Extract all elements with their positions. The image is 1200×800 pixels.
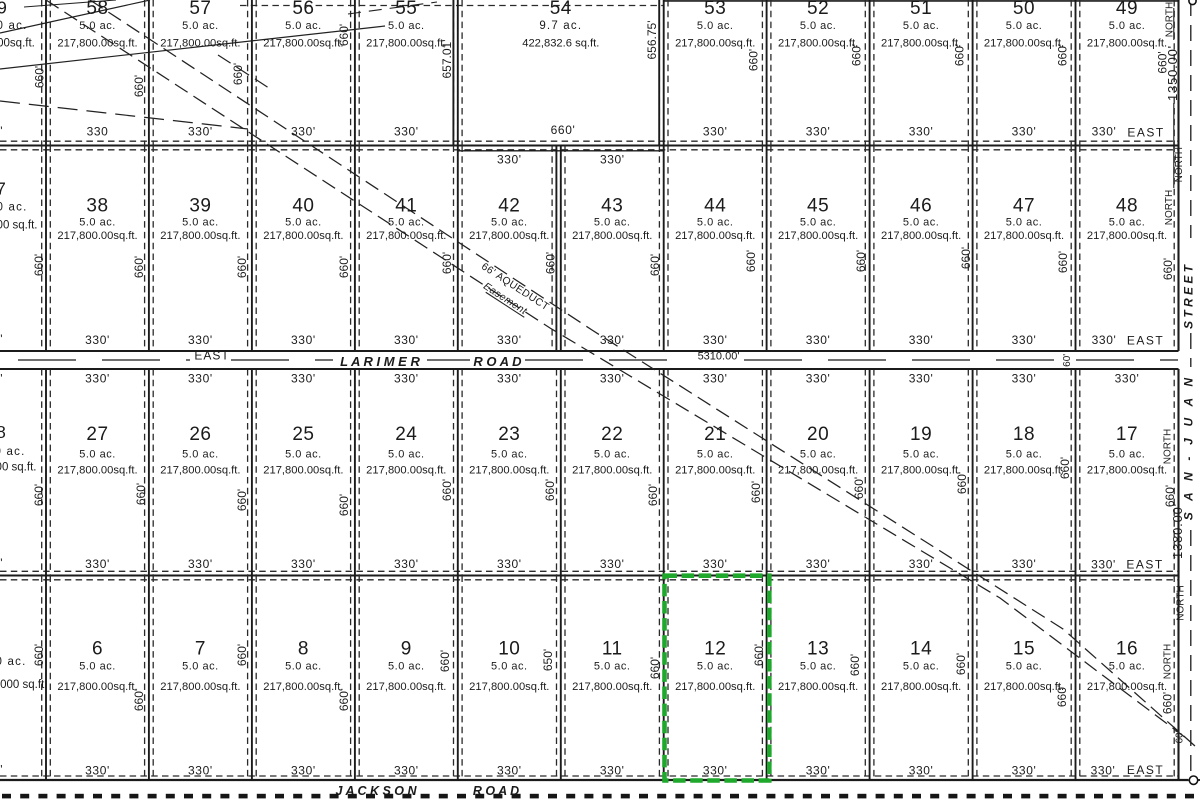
svg-text:660': 660' [744, 250, 758, 272]
svg-text:330': 330' [703, 125, 728, 139]
svg-text:217,800.00sq.ft.: 217,800.00sq.ft. [160, 681, 240, 693]
svg-text:330': 330' [291, 557, 316, 571]
svg-text:330': 330' [1012, 372, 1037, 386]
svg-text:5.0 ac.: 5.0 ac. [388, 20, 425, 32]
svg-text:49: 49 [1116, 0, 1138, 19]
svg-text:5.0 ac.: 5.0 ac. [79, 448, 116, 460]
svg-text:5.0 ac.: 5.0 ac. [800, 448, 837, 460]
svg-text:5.0 ac.: 5.0 ac. [800, 20, 837, 32]
svg-text:EAST: EAST [1127, 763, 1164, 777]
svg-text:50: 50 [1013, 0, 1035, 19]
svg-text:330': 330' [1092, 125, 1117, 139]
svg-text:0 ac.: 0 ac. [0, 656, 26, 668]
svg-text:217,800.00sq.ft.: 217,800.00sq.ft. [984, 37, 1064, 49]
svg-text:660': 660' [1055, 685, 1069, 707]
svg-text:330': 330' [291, 333, 316, 347]
svg-text:26: 26 [189, 424, 211, 445]
svg-text:660': 660' [1161, 258, 1175, 280]
svg-text:217,800.00sq.ft.: 217,800.00sq.ft. [469, 464, 549, 476]
svg-text:0000 sq.ft: 0000 sq.ft [0, 679, 45, 691]
svg-text:660': 660' [1156, 51, 1170, 73]
svg-text:660': 660' [854, 250, 868, 272]
svg-text:5.0 ac.: 5.0 ac. [594, 216, 631, 228]
svg-text:660': 660' [1058, 457, 1072, 479]
svg-text:11: 11 [602, 639, 623, 660]
svg-text:217,800.00sq.ft.: 217,800.00sq.ft. [778, 37, 858, 49]
svg-text:660': 660' [955, 472, 969, 494]
svg-text:217,800.00sq.ft.: 217,800.00sq.ft. [984, 230, 1064, 242]
svg-text:330': 330' [497, 372, 522, 386]
svg-text:EAST: EAST [1127, 126, 1164, 140]
svg-text:217,800.00sq.ft.: 217,800.00sq.ft. [366, 230, 446, 242]
svg-text:217,800.00sq.ft.: 217,800.00sq.ft. [881, 464, 961, 476]
svg-text:16: 16 [1116, 639, 1138, 660]
svg-text:21: 21 [704, 424, 726, 445]
svg-text:330': 330' [188, 557, 213, 571]
svg-text:660': 660' [32, 484, 46, 506]
svg-text:S A N - J U A N: S A N - J U A N [1182, 374, 1196, 521]
svg-text:657.01': 657.01' [440, 40, 454, 79]
svg-text:330': 330' [291, 372, 316, 386]
svg-text:660': 660' [1056, 44, 1070, 66]
svg-text:51: 51 [910, 0, 932, 19]
svg-text:6: 6 [92, 639, 103, 660]
svg-text:330': 330' [600, 333, 625, 347]
svg-text:330': 330' [806, 764, 831, 778]
svg-text:330': 330' [1012, 125, 1037, 139]
svg-text:660': 660' [953, 44, 967, 66]
svg-text:330': 330' [703, 372, 728, 386]
svg-text:5.0 ac.: 5.0 ac. [285, 216, 322, 228]
svg-text:650': 650' [541, 649, 555, 671]
svg-text:330': 330' [806, 372, 831, 386]
svg-text:660': 660' [235, 256, 249, 278]
svg-text:217,800.00sq.ft.: 217,800.00sq.ft. [675, 464, 755, 476]
svg-text:330': 330' [85, 372, 110, 386]
svg-text:53: 53 [704, 0, 726, 19]
svg-text:330': 330' [394, 333, 419, 347]
svg-text:660': 660' [235, 644, 249, 666]
svg-text:217,800.00sq.ft.: 217,800.00sq.ft. [1087, 681, 1167, 693]
svg-text:5.0 ac.: 5.0 ac. [388, 216, 425, 228]
svg-text:217,800.00sq.ft.: 217,800.00sq.ft. [984, 681, 1064, 693]
svg-text:NORTH: NORTH [1165, 2, 1176, 37]
svg-text:9.7 ac.: 9.7 ac. [539, 20, 582, 32]
svg-text:1380.00': 1380.00' [1170, 503, 1185, 559]
svg-text:660': 660' [231, 63, 245, 85]
svg-text:0': 0' [0, 556, 3, 570]
svg-text:217,800.00sq.ft.: 217,800.00sq.ft. [160, 37, 240, 49]
svg-text:660': 660' [959, 247, 973, 269]
svg-text:330': 330' [85, 333, 110, 347]
svg-text:12: 12 [704, 639, 726, 660]
svg-text:5.0 ac.: 5.0 ac. [182, 448, 219, 460]
svg-text:5.0 ac.: 5.0 ac. [285, 448, 322, 460]
svg-text:41: 41 [395, 196, 417, 217]
svg-text:660': 660' [747, 49, 761, 71]
svg-text:45: 45 [807, 196, 829, 217]
svg-text:L A R I M E R: L A R I M E R [340, 354, 420, 369]
svg-text:19: 19 [910, 424, 932, 445]
svg-text:330': 330' [600, 764, 625, 778]
svg-text:330': 330' [188, 372, 213, 386]
svg-text:9: 9 [0, 0, 7, 18]
svg-text:660': 660' [337, 689, 351, 711]
svg-text:20: 20 [807, 424, 829, 445]
svg-text:330': 330' [909, 764, 934, 778]
svg-text:217,800.00sq.ft.: 217,800.00sq.ft. [263, 230, 343, 242]
svg-text:5.0 ac.: 5.0 ac. [697, 216, 734, 228]
svg-text:660': 660' [646, 484, 660, 506]
svg-text:48: 48 [1116, 196, 1138, 217]
svg-text:330': 330' [1012, 764, 1037, 778]
svg-text:217,800.00sq.ft.: 217,800.00sq.ft. [778, 230, 858, 242]
svg-text:660': 660' [648, 657, 662, 679]
svg-text:5.0 ac.: 5.0 ac. [697, 20, 734, 32]
svg-text:EAST: EAST [194, 349, 229, 363]
svg-text:8: 8 [298, 639, 309, 660]
svg-text:330': 330' [394, 557, 419, 571]
svg-text:660': 660' [648, 254, 662, 276]
svg-text:330': 330' [188, 764, 213, 778]
svg-text:330': 330' [600, 372, 625, 386]
svg-text:217,800.00sq.ft.: 217,800.00sq.ft. [984, 464, 1064, 476]
svg-text:NORTH: NORTH [1163, 429, 1174, 464]
svg-text:660': 660' [132, 75, 146, 97]
svg-text:330': 330' [703, 333, 728, 347]
svg-text:56: 56 [292, 0, 314, 19]
svg-text:217,800.00sq.ft.: 217,800.00sq.ft. [778, 681, 858, 693]
svg-text:55: 55 [395, 0, 417, 19]
svg-text:330': 330' [909, 372, 934, 386]
svg-text:422,832.6 sq.ft.: 422,832.6 sq.ft. [522, 37, 599, 49]
svg-text:330': 330' [1012, 333, 1037, 347]
svg-text:R O A D: R O A D [473, 354, 522, 369]
svg-text:NORTH: NORTH [1176, 585, 1187, 620]
svg-text:660': 660' [132, 689, 146, 711]
svg-text:25: 25 [292, 424, 314, 445]
svg-text:330': 330' [188, 125, 213, 139]
svg-text:217,800.00sq.ft.: 217,800.00sq.ft. [57, 230, 137, 242]
svg-text:660': 660' [337, 494, 351, 516]
svg-text:330': 330' [291, 764, 316, 778]
svg-text:660': 660' [33, 66, 47, 88]
svg-text:57: 57 [189, 0, 211, 19]
svg-text:5.0 ac.: 5.0 ac. [182, 20, 219, 32]
svg-text:5.0 ac.: 5.0 ac. [285, 660, 322, 672]
svg-text:5.0 ac.: 5.0 ac. [1006, 660, 1043, 672]
svg-text:18: 18 [1013, 424, 1035, 445]
svg-text:330': 330' [909, 125, 934, 139]
svg-text:5.0 ac.: 5.0 ac. [697, 660, 734, 672]
svg-text:660': 660' [954, 653, 968, 675]
svg-text:5.0 ac.: 5.0 ac. [491, 216, 528, 228]
svg-text:NORTH: NORTH [1163, 644, 1174, 679]
svg-text:EAST: EAST [1126, 557, 1163, 571]
svg-text:217,800.00sq.ft.: 217,800.00sq.ft. [57, 464, 137, 476]
svg-text:330': 330' [1091, 764, 1116, 778]
svg-text:13: 13 [807, 639, 829, 660]
svg-text:40: 40 [292, 196, 314, 217]
svg-text:58: 58 [86, 0, 108, 19]
svg-text:330: 330 [87, 125, 109, 139]
svg-text:5.0 ac.: 5.0 ac. [491, 660, 528, 672]
svg-text:00 sq.ft.: 00 sq.ft. [0, 220, 37, 232]
svg-text:5.0 ac.: 5.0 ac. [1006, 20, 1043, 32]
svg-text:330': 330' [394, 764, 419, 778]
svg-text:5.0 ac.: 5.0 ac. [903, 20, 940, 32]
svg-text:60': 60' [1062, 354, 1073, 367]
svg-text:0': 0' [0, 124, 3, 138]
svg-text:39: 39 [189, 196, 211, 217]
svg-text:46: 46 [910, 196, 932, 217]
svg-text:330': 330' [1092, 333, 1117, 347]
svg-text:5.0 ac.: 5.0 ac. [1006, 448, 1043, 460]
svg-text:660': 660' [132, 256, 146, 278]
svg-text:217,800.00sq.ft.: 217,800.00sq.ft. [1087, 37, 1167, 49]
svg-text:217,800.00sq.ft.: 217,800.00sq.ft. [263, 681, 343, 693]
svg-text:27: 27 [86, 424, 108, 445]
svg-text:330': 330' [1115, 372, 1140, 386]
svg-text:217,800.00sq.ft.: 217,800.00sq.ft. [366, 37, 446, 49]
svg-text:5.0 ac.: 5.0 ac. [800, 216, 837, 228]
svg-text:44: 44 [704, 196, 726, 217]
svg-text:330': 330' [497, 153, 522, 167]
svg-text:217,800.00sq.ft.: 217,800.00sq.ft. [881, 681, 961, 693]
svg-text:24: 24 [395, 424, 417, 445]
svg-text:656.75': 656.75' [645, 21, 659, 60]
svg-text:5.0 ac.: 5.0 ac. [594, 660, 631, 672]
svg-text:217,800.00sq.ft.: 217,800.00sq.ft. [57, 37, 137, 49]
svg-text:5.0 ac.: 5.0 ac. [79, 216, 116, 228]
svg-text:330': 330' [806, 125, 831, 139]
svg-text:217,800.00sq.ft.: 217,800.00sq.ft. [1087, 464, 1167, 476]
svg-text:217,800.00sq.ft.: 217,800.00sq.ft. [366, 681, 446, 693]
svg-text:660': 660' [438, 650, 452, 672]
svg-text:217,800.00sq.ft.: 217,800.00sq.ft. [469, 681, 549, 693]
svg-text:217,800.00sq.ft.: 217,800.00sq.ft. [263, 464, 343, 476]
svg-text:330': 330' [497, 333, 522, 347]
svg-text:5.0 ac.: 5.0 ac. [903, 448, 940, 460]
svg-text:660': 660' [337, 24, 351, 46]
svg-text:330': 330' [703, 764, 728, 778]
svg-text:217,800.00sq.ft.: 217,800.00sq.ft. [366, 464, 446, 476]
svg-text:5.0 ac.: 5.0 ac. [182, 660, 219, 672]
svg-text:217,800.00sq.ft.: 217,800.00sq.ft. [572, 464, 652, 476]
svg-text:330': 330' [291, 125, 316, 139]
svg-text:330': 330' [909, 557, 934, 571]
svg-text:217,800.00sq.ft.: 217,800.00sq.ft. [469, 230, 549, 242]
svg-text:330': 330' [188, 333, 213, 347]
svg-text:00sq.ft.: 00sq.ft. [0, 38, 35, 50]
svg-text:EAST: EAST [1127, 334, 1164, 348]
svg-text:5.0 ac.: 5.0 ac. [182, 216, 219, 228]
svg-text:217,800.00sq.ft.: 217,800.00sq.ft. [675, 681, 755, 693]
svg-text:5.0 ac.: 5.0 ac. [1109, 660, 1146, 672]
svg-text:7: 7 [0, 179, 6, 199]
svg-text:5.0 ac.: 5.0 ac. [388, 660, 425, 672]
svg-text:217,800.00sq.ft.: 217,800.00sq.ft. [572, 230, 652, 242]
svg-text:660': 660' [235, 489, 249, 511]
svg-text:52: 52 [807, 0, 829, 19]
svg-text:5.0 ac.: 5.0 ac. [1109, 20, 1146, 32]
svg-text:660': 660' [848, 654, 862, 676]
svg-text:0 ac.: 0 ac. [0, 446, 25, 458]
svg-text:5.0 ac.: 5.0 ac. [79, 660, 116, 672]
svg-text:5.0 ac.: 5.0 ac. [285, 20, 322, 32]
svg-text:10: 10 [498, 639, 520, 660]
svg-text:217,800.00sq.ft.: 217,800.00sq.ft. [160, 230, 240, 242]
svg-text:5.0 ac.: 5.0 ac. [491, 448, 528, 460]
svg-text:660': 660' [1163, 485, 1177, 507]
svg-text:15: 15 [1013, 639, 1035, 660]
svg-text:217,800.00sq.ft.: 217,800.00sq.ft. [675, 230, 755, 242]
svg-text:0': 0' [0, 763, 3, 777]
svg-text:43: 43 [601, 196, 623, 217]
svg-text:660': 660' [337, 256, 351, 278]
svg-text:217,800.00sq.ft.: 217,800.00sq.ft. [263, 37, 343, 49]
svg-text:5.0 ac.: 5.0 ac. [594, 448, 631, 460]
svg-text:5.0 ac.: 5.0 ac. [1006, 216, 1043, 228]
svg-text:217,800.00sq.ft.: 217,800.00sq.ft. [778, 464, 858, 476]
svg-text:330': 330' [806, 333, 831, 347]
svg-text:5.0 ac.: 5.0 ac. [800, 660, 837, 672]
svg-text:5310.00': 5310.00' [698, 350, 740, 362]
svg-text:330': 330' [1091, 557, 1116, 571]
svg-text:330': 330' [909, 333, 934, 347]
svg-text:0 ac.: 0 ac. [0, 20, 27, 32]
svg-text:0': 0' [0, 332, 3, 346]
svg-text:330': 330' [394, 125, 419, 139]
svg-text:47: 47 [1013, 196, 1035, 217]
svg-text:5.0 ac.: 5.0 ac. [903, 660, 940, 672]
svg-text:5.0 ac.: 5.0 ac. [903, 216, 940, 228]
svg-text:217,800.00sq.ft.: 217,800.00sq.ft. [881, 37, 961, 49]
svg-text:330': 330' [1012, 557, 1037, 571]
svg-text:NORTH: NORTH [1174, 147, 1185, 182]
svg-text:8: 8 [0, 422, 6, 442]
svg-text:5.0 ac.: 5.0 ac. [1109, 448, 1146, 460]
svg-text:0 ac.: 0 ac. [0, 202, 27, 214]
svg-text:5.0 ac.: 5.0 ac. [388, 448, 425, 460]
svg-text:14: 14 [910, 639, 932, 660]
svg-text:330': 330' [703, 557, 728, 571]
svg-text:660': 660' [440, 479, 454, 501]
svg-text:217,800.00sq.ft.: 217,800.00sq.ft. [572, 681, 652, 693]
svg-text:330': 330' [806, 557, 831, 571]
svg-text:660': 660' [852, 477, 866, 499]
svg-text:660': 660' [752, 644, 766, 666]
svg-text:660': 660' [1161, 692, 1175, 714]
svg-text:00 sq.ft.: 00 sq.ft. [0, 462, 36, 474]
svg-text:217,800.00sq.ft.: 217,800.00sq.ft. [160, 464, 240, 476]
svg-text:330': 330' [600, 153, 625, 167]
svg-text:330': 330' [497, 764, 522, 778]
svg-text:217,800.00sq.ft.: 217,800.00sq.ft. [881, 230, 961, 242]
svg-text:217,800.00sq.ft.: 217,800.00sq.ft. [57, 681, 137, 693]
svg-text:660': 660' [440, 252, 454, 274]
svg-text:17: 17 [1116, 424, 1138, 445]
svg-text:5.0 ac.: 5.0 ac. [697, 448, 734, 460]
svg-text:330': 330' [85, 764, 110, 778]
svg-text:5.0 ac.: 5.0 ac. [79, 20, 116, 32]
svg-text:330': 330' [600, 557, 625, 571]
svg-text:54: 54 [550, 0, 572, 19]
svg-text:660': 660' [544, 252, 558, 274]
svg-text:22: 22 [601, 424, 623, 445]
svg-text:38: 38 [86, 196, 108, 217]
svg-text:660': 660' [1056, 251, 1070, 273]
svg-text:217,800.00sq.ft.: 217,800.00sq.ft. [675, 37, 755, 49]
svg-text:660': 660' [543, 479, 557, 501]
svg-text:217,800.00sq.ft.: 217,800.00sq.ft. [1087, 230, 1167, 242]
svg-text:7: 7 [195, 639, 206, 660]
svg-text:330': 330' [85, 557, 110, 571]
svg-text:330': 330' [394, 372, 419, 386]
svg-text:660': 660' [134, 483, 148, 505]
svg-text:NORTH: NORTH [1164, 190, 1175, 225]
svg-text:660': 660' [32, 644, 46, 666]
svg-text:23: 23 [498, 424, 520, 445]
svg-text:660': 660' [850, 44, 864, 66]
svg-text:9: 9 [401, 639, 412, 660]
svg-text:5.0 ac.: 5.0 ac. [1109, 216, 1146, 228]
svg-text:660': 660' [32, 254, 46, 276]
svg-text:660': 660' [749, 481, 763, 503]
svg-text:S T R E E T: S T R E E T [1182, 263, 1196, 329]
svg-text:660': 660' [551, 123, 576, 137]
svg-text:42: 42 [498, 196, 520, 217]
svg-text:0': 0' [0, 372, 3, 386]
svg-text:330': 330' [497, 557, 522, 571]
